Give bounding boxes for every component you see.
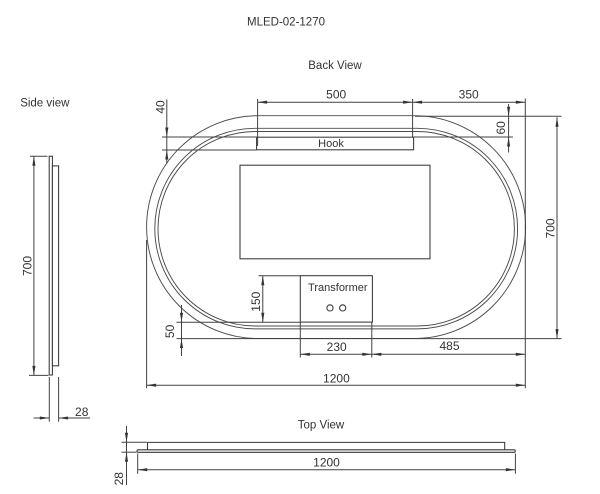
svg-text:1200: 1200 — [313, 456, 340, 470]
svg-text:Side view: Side view — [20, 98, 70, 110]
svg-text:50: 50 — [163, 324, 177, 338]
svg-text:700: 700 — [543, 218, 557, 238]
svg-text:MLED-02-1270: MLED-02-1270 — [247, 17, 325, 29]
svg-text:60: 60 — [494, 121, 508, 135]
svg-text:Top View: Top View — [298, 420, 345, 432]
svg-text:28: 28 — [75, 405, 89, 419]
svg-text:40: 40 — [153, 100, 167, 114]
svg-text:485: 485 — [439, 339, 459, 353]
svg-text:Hook: Hook — [318, 138, 344, 150]
svg-text:350: 350 — [459, 88, 479, 102]
svg-text:700: 700 — [20, 256, 34, 276]
svg-text:1200: 1200 — [323, 372, 350, 386]
svg-text:Back View: Back View — [308, 60, 362, 72]
svg-text:Transformer: Transformer — [308, 282, 368, 294]
svg-text:150: 150 — [249, 291, 263, 311]
svg-text:28: 28 — [112, 472, 126, 486]
svg-text:230: 230 — [327, 340, 347, 354]
svg-text:500: 500 — [326, 88, 346, 102]
